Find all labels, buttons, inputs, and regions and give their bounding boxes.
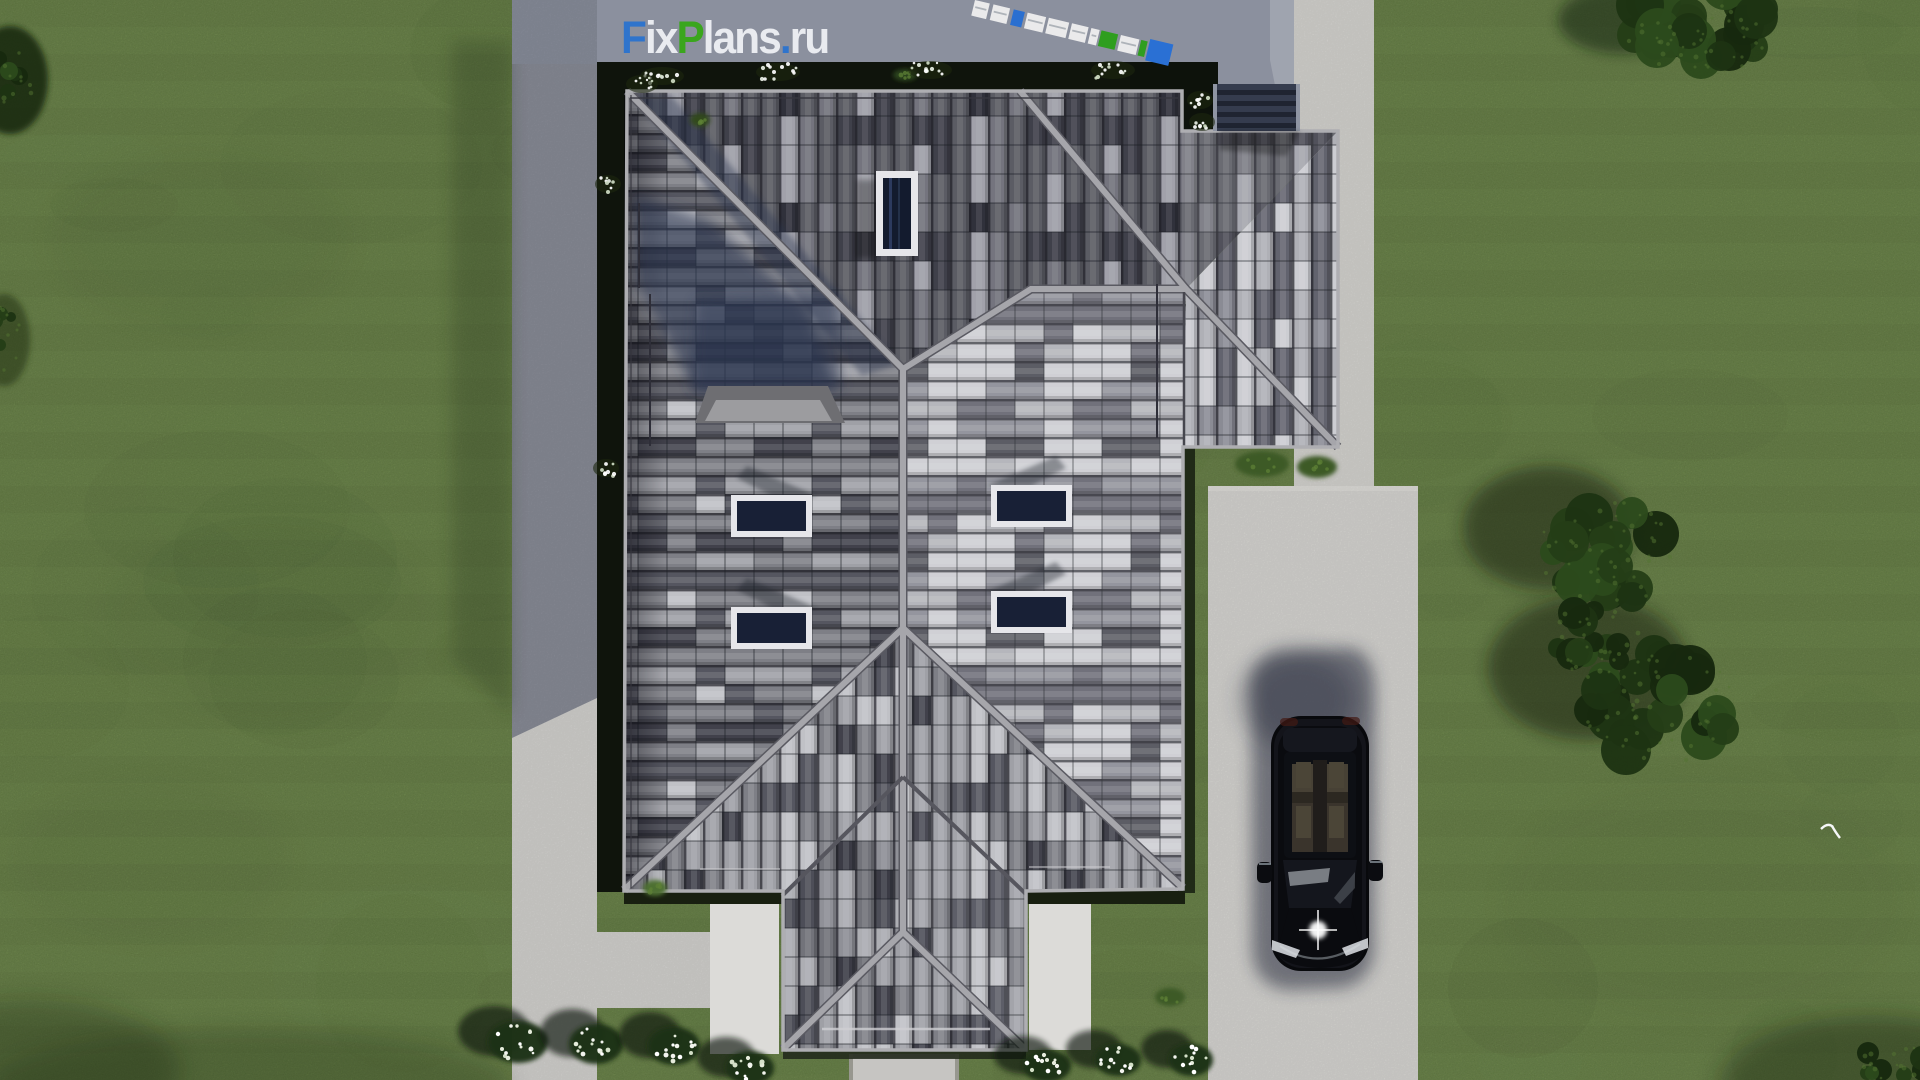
svg-text:FixPlans.ru: FixPlans.ru xyxy=(621,13,828,63)
